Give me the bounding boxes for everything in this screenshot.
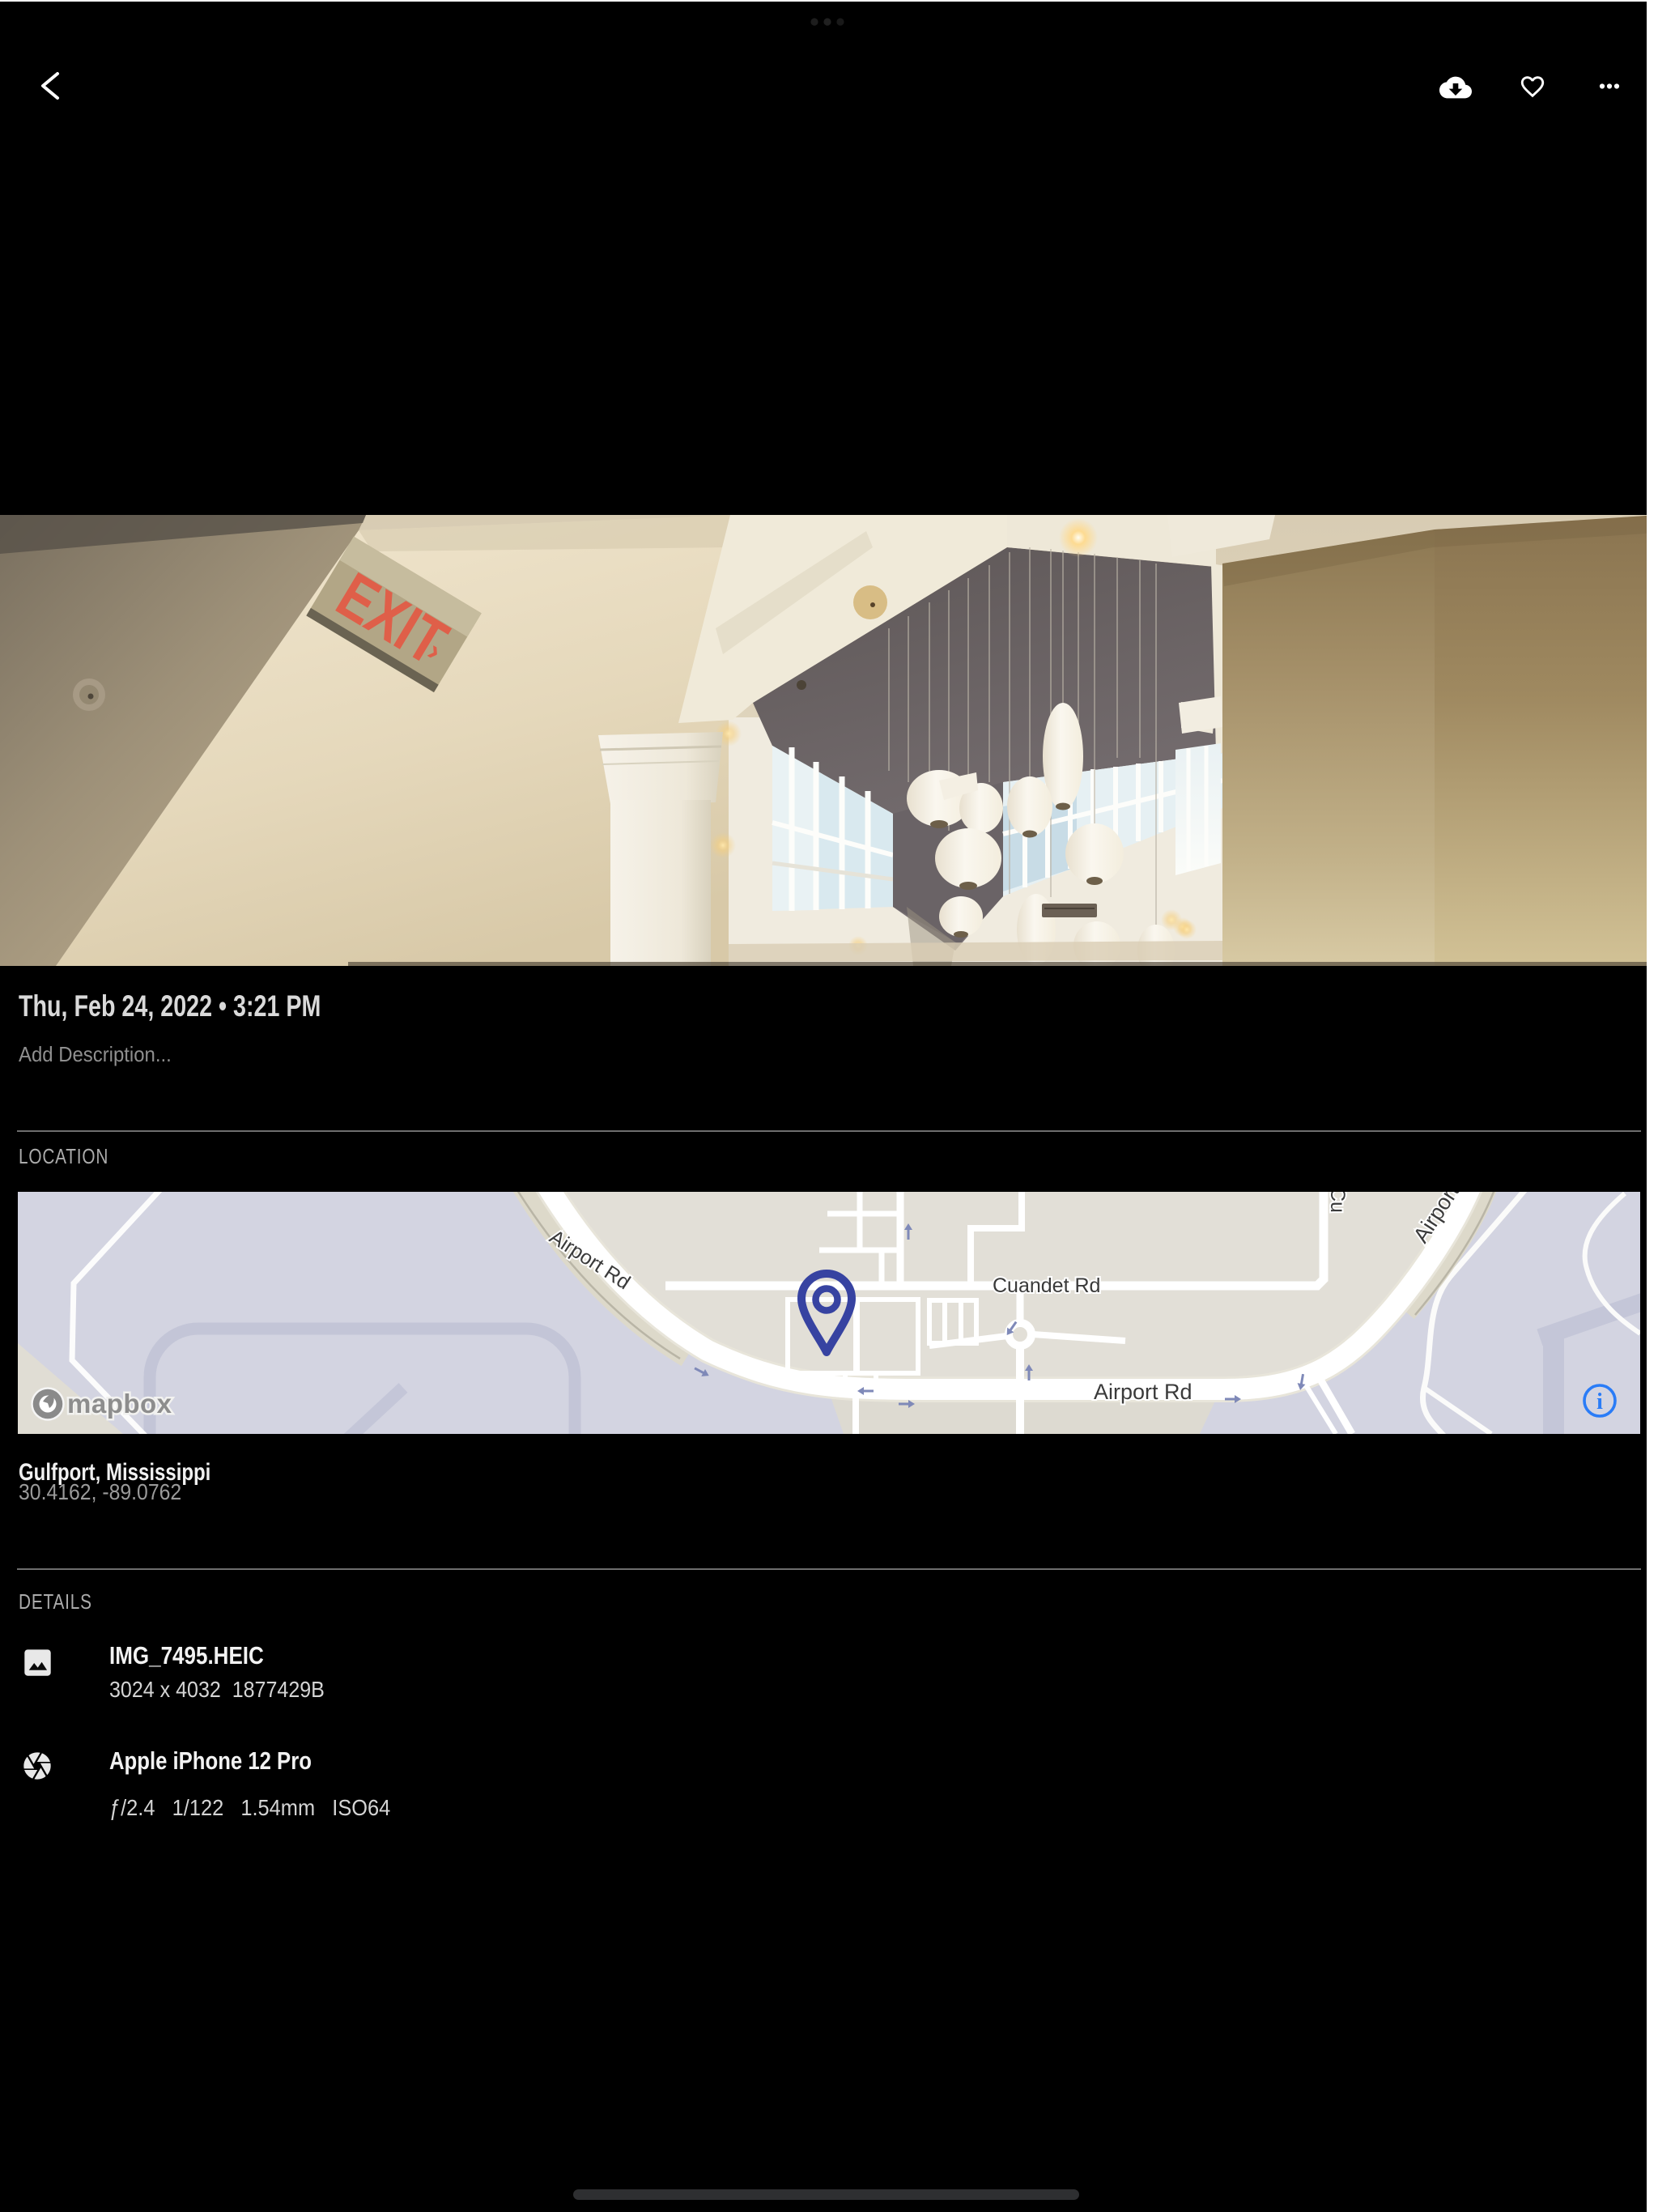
svg-text:Cuandet Rd: Cuandet Rd [993,1274,1100,1297]
svg-text:mapbox: mapbox [67,1389,172,1419]
svg-text:Airport Rd: Airport Rd [1094,1380,1192,1404]
svg-text:i: i [1596,1389,1603,1414]
svg-text:Cu: Cu [1326,1192,1349,1213]
